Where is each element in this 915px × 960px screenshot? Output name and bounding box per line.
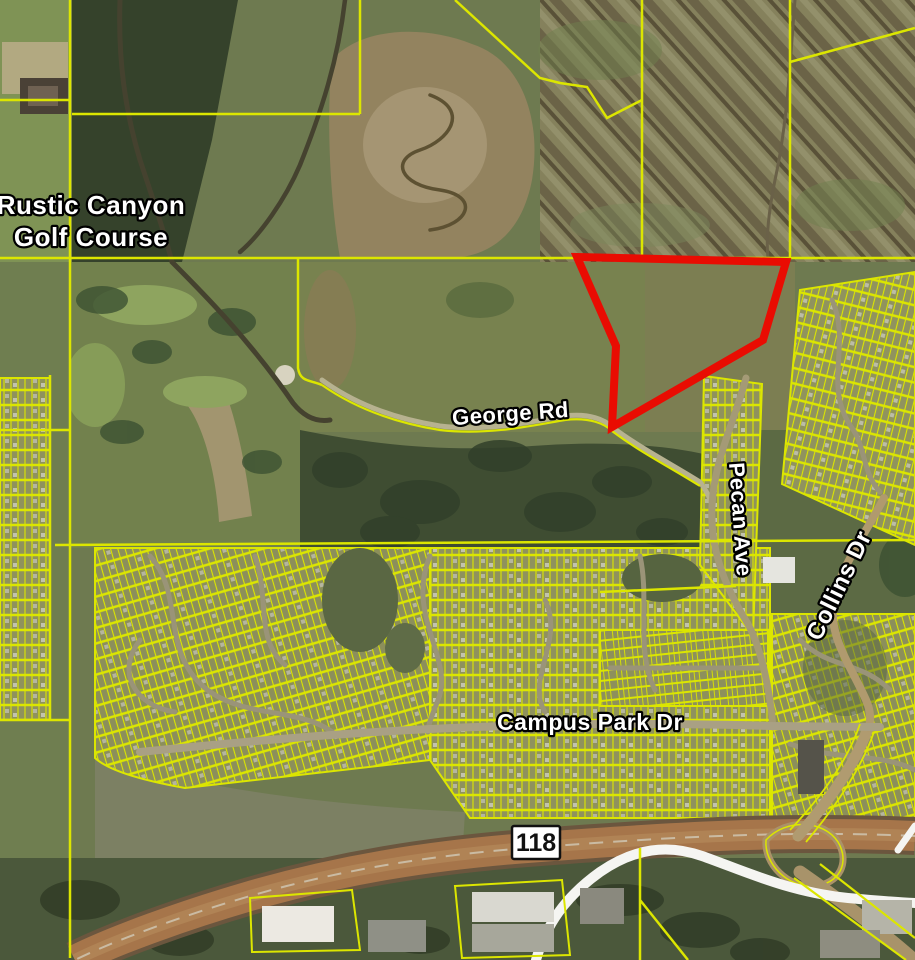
label-campus-park-dr: Campus Park Dr: [497, 709, 683, 735]
label-golf-course-line2: Golf Course: [14, 222, 168, 252]
highway-118-number: 118: [516, 829, 556, 857]
parcel-map[interactable]: Rustic Canyon Golf Course George Rd Camp…: [0, 0, 915, 960]
highway-118-shield: 118: [512, 826, 560, 859]
label-golf-course-line1: Rustic Canyon: [0, 190, 185, 220]
map-canvas[interactable]: Rustic Canyon Golf Course George Rd Camp…: [0, 0, 915, 960]
